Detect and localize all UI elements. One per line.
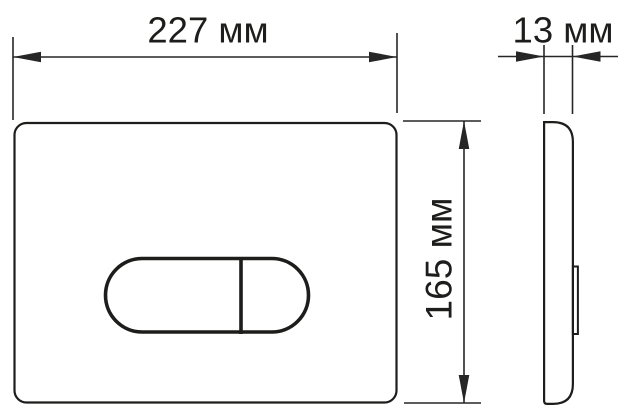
svg-text:165 мм: 165 мм — [419, 198, 460, 321]
svg-text:13 мм: 13 мм — [513, 10, 614, 51]
svg-text:227 мм: 227 мм — [147, 10, 268, 51]
